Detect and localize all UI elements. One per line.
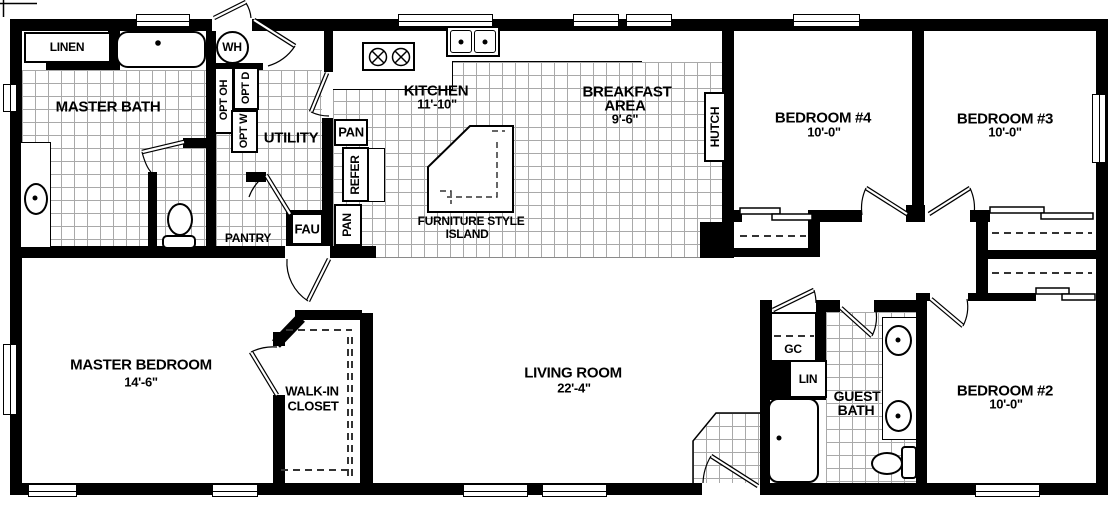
wall (273, 332, 285, 346)
door-gap (212, 19, 252, 31)
bathtub-icon (116, 31, 206, 68)
window (626, 14, 672, 27)
wall (330, 246, 376, 258)
wall (295, 310, 362, 320)
toilet-icon (871, 452, 903, 475)
window (542, 484, 607, 497)
wall (360, 313, 373, 483)
window (3, 344, 17, 415)
sink-basin (474, 30, 496, 53)
wall (814, 210, 862, 222)
linen-label: LINEN (50, 40, 85, 54)
window (1092, 94, 1106, 163)
wall (912, 31, 924, 210)
opt-washer-label: OPT W (238, 114, 250, 149)
pan-upper-label: PAN (338, 125, 364, 140)
door-gap (702, 483, 760, 495)
pantry-label: PANTRY (225, 231, 271, 245)
window (212, 484, 258, 497)
window (28, 484, 77, 497)
wall (183, 138, 206, 148)
guest-bath-label-2: BATH (838, 402, 875, 418)
wall (46, 62, 112, 70)
refrigerator-label: REFER (348, 155, 362, 194)
closet-rod (281, 233, 1092, 477)
kitchen-dim: 11'-10" (417, 97, 457, 112)
wall (273, 395, 285, 483)
sink-icon (24, 183, 48, 215)
utility-label: UTILITY (264, 130, 319, 147)
fau-label: FAU (294, 222, 319, 237)
eave-lines (0, 0, 37, 17)
wall (916, 301, 927, 483)
sink-basin (450, 30, 472, 53)
wall (874, 300, 916, 312)
window (463, 484, 528, 497)
water-heater-label: WH (222, 40, 241, 54)
toilet-tank (901, 446, 917, 479)
pan-lower-label: PAN (340, 213, 354, 237)
toilet-icon (167, 203, 193, 236)
wall (760, 300, 772, 312)
lin-label: LIN (799, 372, 817, 386)
stove-icon (362, 42, 415, 71)
bedroom3-dim: 10'-0" (988, 125, 1021, 140)
wall (700, 222, 734, 258)
wall (10, 246, 285, 258)
opt-overhead-label: OPT OH (218, 80, 230, 120)
living-room-dim: 22'-4" (557, 381, 590, 396)
sink-icon (885, 400, 912, 432)
bedroom2-dim: 10'-0" (989, 397, 1022, 412)
island-label-2: ISLAND (446, 227, 489, 241)
master-bedroom-label: MASTER BEDROOM (70, 357, 212, 374)
entry-floor (693, 413, 760, 483)
window (573, 14, 619, 27)
wall (976, 210, 988, 301)
wall (968, 293, 1036, 301)
wall (988, 250, 1096, 259)
window (3, 84, 17, 112)
gc-label: GC (784, 342, 801, 356)
wall (816, 300, 840, 312)
window (136, 14, 190, 27)
toilet-base (162, 235, 196, 249)
wall (148, 172, 157, 250)
wall (734, 248, 814, 257)
breakfast-dim: 9'-6" (612, 112, 639, 127)
wall (1096, 19, 1108, 495)
opt-dryer-label: OPT D (240, 72, 252, 104)
floor-plan: LINEN MASTER BATH WH OPT OH OPT D OPT W … (0, 0, 1109, 505)
wall (246, 172, 266, 182)
master-bath-label: MASTER BATH (56, 99, 161, 116)
walkin-closet-label-1: WALK-IN (285, 384, 339, 399)
island-label-1: FURNITURE STYLE (418, 214, 525, 228)
wall (916, 293, 930, 301)
master-bedroom-dim: 14'-6" (124, 375, 157, 390)
bedroom4-dim: 10'-0" (807, 125, 840, 140)
window (793, 14, 860, 27)
hutch-label: HUTCH (708, 107, 722, 148)
bathtub-icon (768, 398, 819, 483)
living-room-label: LIVING ROOM (524, 365, 622, 382)
window (975, 484, 1040, 497)
refrigerator-door (368, 148, 385, 202)
sink-icon (885, 325, 912, 356)
walkin-closet-label-2: CLOSET (288, 399, 339, 414)
wall (324, 31, 333, 72)
wall (734, 210, 742, 222)
